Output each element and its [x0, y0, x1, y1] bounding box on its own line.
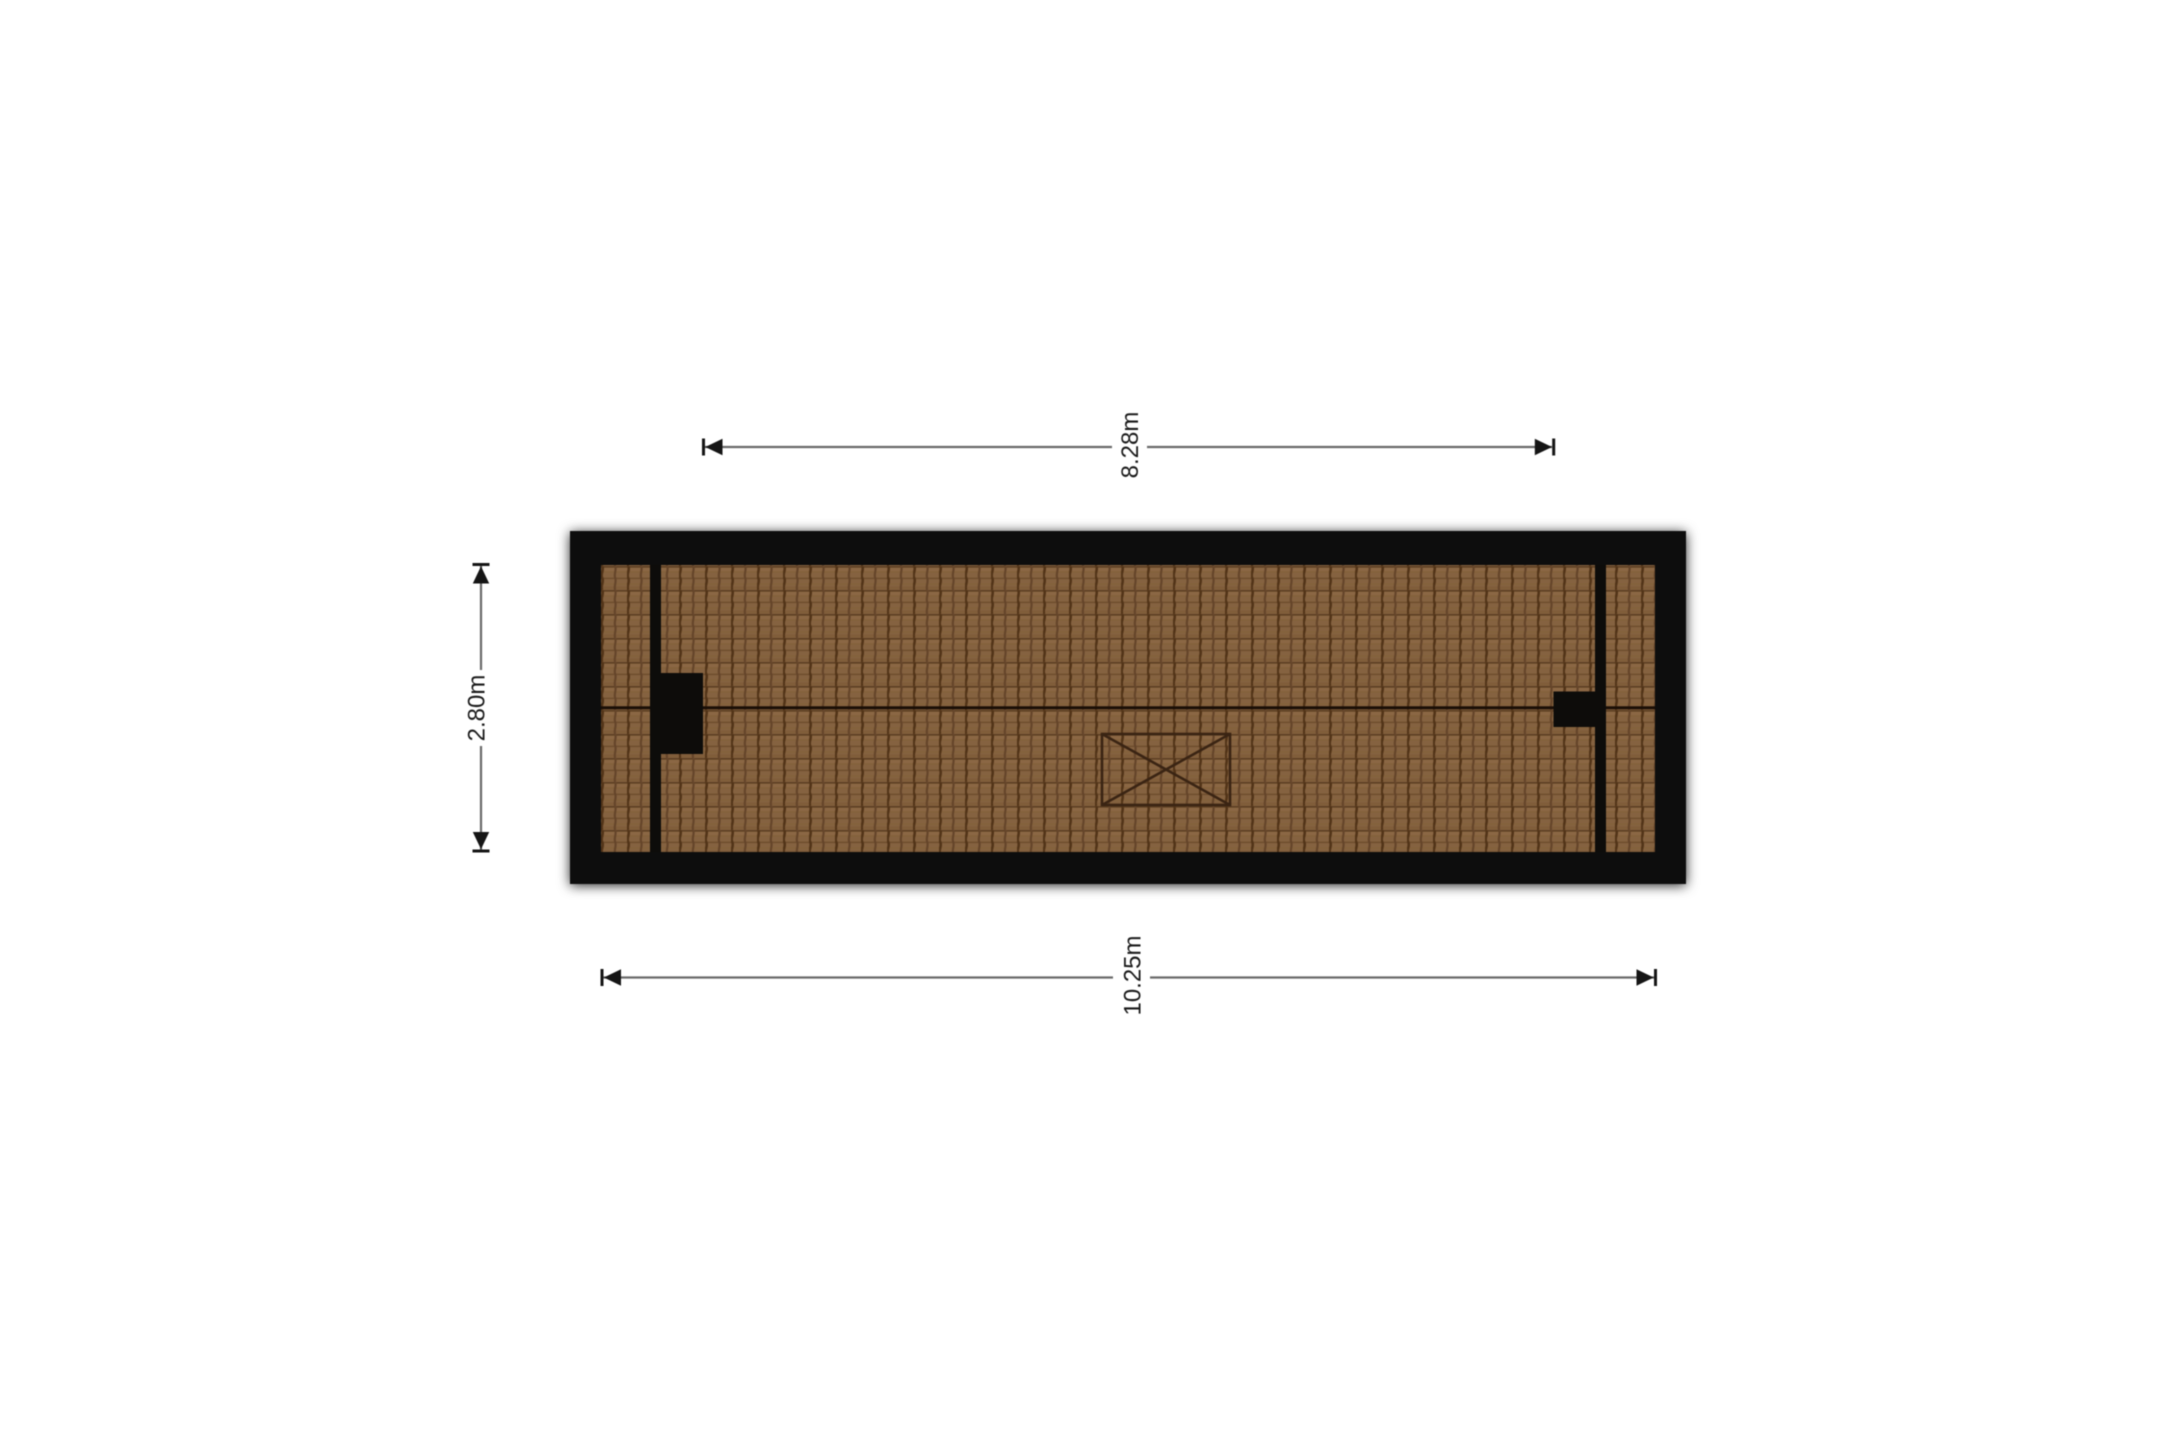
svg-text:8.28m: 8.28m: [1117, 412, 1144, 479]
svg-text:10.25m: 10.25m: [1119, 935, 1146, 1015]
svg-text:2.80m: 2.80m: [464, 675, 491, 742]
